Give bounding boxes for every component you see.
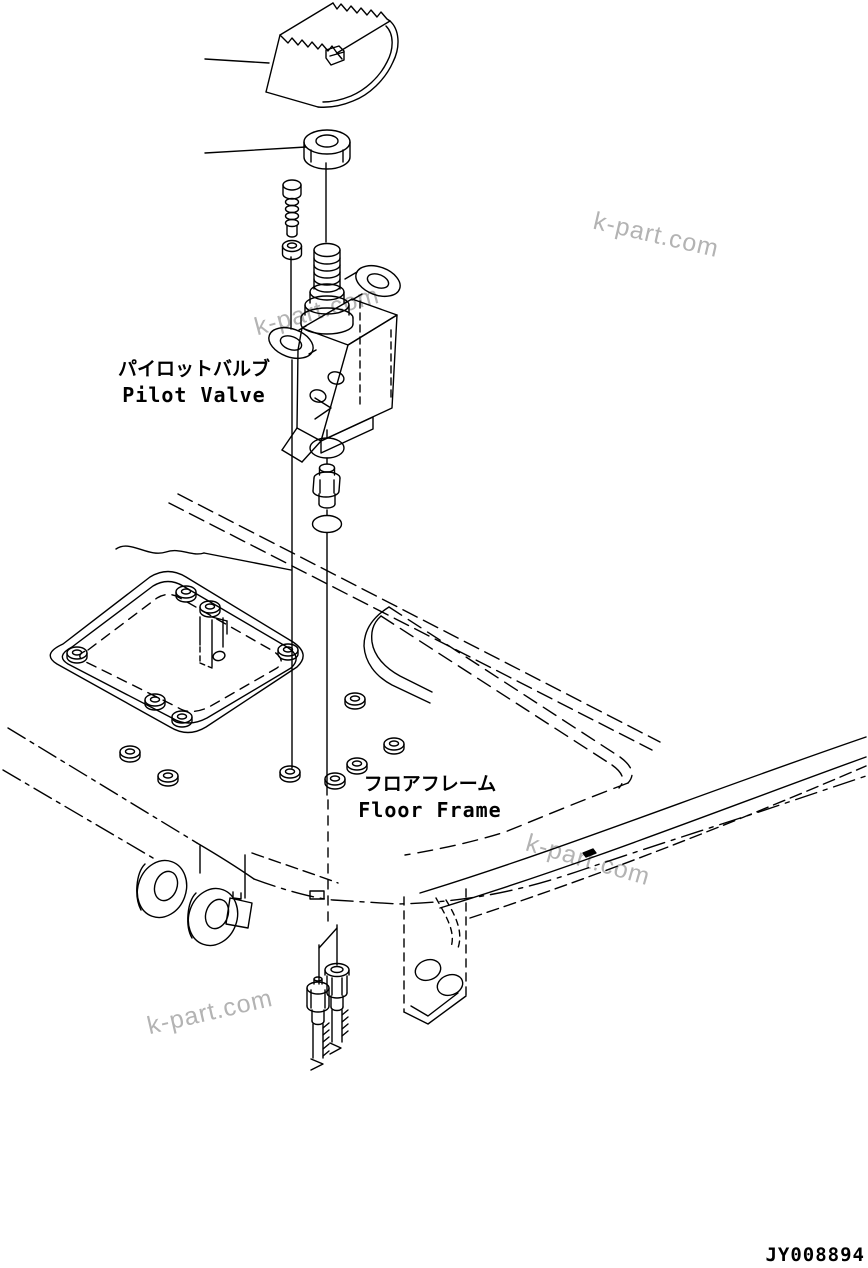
exploded-view-drawing xyxy=(0,0,868,1268)
floor-frame-label: フロアフレーム Floor Frame xyxy=(344,771,516,823)
connector-fitting-drawing xyxy=(313,458,340,515)
floor-frame-label-jp: フロアフレーム xyxy=(344,771,516,797)
o-ring-lower-drawing xyxy=(313,516,342,923)
frame-lugs-drawing xyxy=(130,854,252,953)
mounting-nut-drawing xyxy=(304,130,350,169)
floor-frame-drawing xyxy=(3,494,866,1024)
hose-fittings-drawing xyxy=(307,925,349,1070)
standoff-block-drawing xyxy=(200,617,227,668)
parts-catalog-page: k-part.com k-part.com k-part.com k-part.… xyxy=(0,0,868,1268)
pilot-valve-label: パイロットバルブ Pilot Valve xyxy=(108,356,280,408)
pedal-drawing xyxy=(266,3,398,107)
leader-lines xyxy=(205,59,306,153)
under-frame-bracket-drawing xyxy=(404,889,466,1024)
pilot-valve-drawing xyxy=(265,244,405,463)
drawing-number: JY008894 xyxy=(765,1244,865,1266)
lock-nut-drawing xyxy=(283,241,302,260)
floor-frame-label-en: Floor Frame xyxy=(344,797,516,823)
pilot-valve-label-jp: パイロットバルブ xyxy=(108,356,280,382)
bolt-drawing xyxy=(283,180,301,237)
pilot-valve-label-en: Pilot Valve xyxy=(108,382,280,408)
